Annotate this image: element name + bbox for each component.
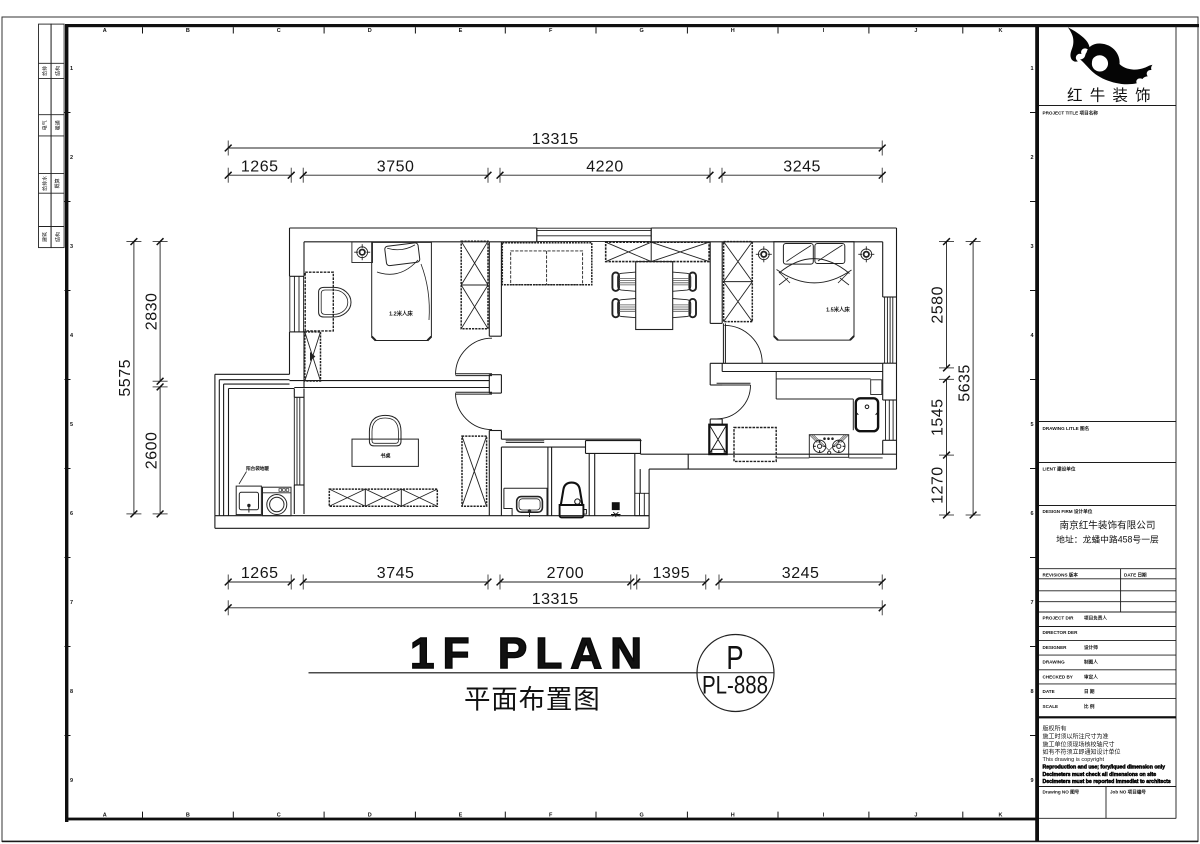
svg-text:2830: 2830: [143, 293, 160, 331]
svg-text:制图人: 制图人: [1084, 659, 1098, 666]
svg-text:2: 2: [1030, 155, 1033, 161]
svg-text:3245: 3245: [783, 158, 821, 175]
svg-text:9: 9: [1030, 778, 1033, 784]
svg-text:PL-888: PL-888: [702, 671, 768, 699]
svg-text:南京红牛装饰有限公司: 南京红牛装饰有限公司: [1060, 520, 1156, 532]
svg-text:G: G: [640, 812, 644, 818]
svg-text:DATE: DATE: [1043, 689, 1055, 694]
svg-text:给排: 给排: [41, 66, 48, 76]
svg-text:3750: 3750: [377, 158, 415, 175]
svg-text:K: K: [999, 812, 1003, 818]
svg-text:CHECKED BY: CHECKED BY: [1043, 675, 1073, 680]
svg-text:J: J: [914, 28, 917, 34]
svg-text:红牛装饰: 红牛装饰: [1067, 87, 1158, 105]
svg-text:暖通: 暖通: [54, 120, 61, 130]
svg-text:给排水: 给排水: [41, 176, 48, 191]
svg-text:8: 8: [70, 689, 73, 695]
svg-text:6: 6: [70, 511, 73, 517]
svg-text:1: 1: [70, 66, 73, 72]
svg-text:施工单位须现场核校轴尺寸: 施工单位须现场核校轴尺寸: [1043, 740, 1115, 748]
svg-text:E: E: [459, 28, 463, 34]
svg-text:SCALE: SCALE: [1043, 704, 1059, 709]
svg-text:E: E: [459, 812, 463, 818]
svg-text:5: 5: [1030, 422, 1033, 428]
svg-text:1.2米人床: 1.2米人床: [389, 310, 413, 318]
svg-text:C: C: [277, 28, 281, 34]
svg-text:1.5米人床: 1.5米人床: [826, 306, 850, 314]
svg-text:6: 6: [1030, 511, 1033, 517]
svg-text:1265: 1265: [241, 158, 279, 175]
svg-text:1395: 1395: [653, 565, 691, 582]
svg-text:1545: 1545: [930, 398, 947, 436]
svg-text:2: 2: [70, 155, 73, 161]
svg-text:8: 8: [1030, 689, 1033, 695]
svg-text:DESIGN FIRM 设计单位: DESIGN FIRM 设计单位: [1043, 508, 1093, 515]
svg-text:7: 7: [1030, 600, 1033, 606]
svg-text:如有不符须立即通知设计单位: 如有不符须立即通知设计单位: [1043, 748, 1121, 756]
svg-text:DRAWING LITLE 图名: DRAWING LITLE 图名: [1043, 425, 1090, 432]
svg-text:Reproduction and use; fory/iqu: Reproduction and use; fory/iqued dimensi…: [1043, 764, 1166, 770]
svg-text:G: G: [640, 28, 644, 34]
svg-text:7: 7: [70, 600, 73, 606]
svg-text:3245: 3245: [782, 565, 820, 582]
svg-text:3: 3: [70, 244, 73, 250]
svg-text:DESIGNER: DESIGNER: [1043, 645, 1068, 650]
svg-text:D: D: [368, 812, 372, 818]
svg-text:Decimeters must check all dime: Decimeters must check all dimensions on …: [1043, 772, 1157, 778]
svg-text:4220: 4220: [586, 158, 624, 175]
svg-text:书桌: 书桌: [380, 453, 391, 460]
svg-text:B: B: [186, 28, 190, 34]
svg-text:3745: 3745: [377, 565, 415, 582]
svg-text:C: C: [277, 812, 281, 818]
svg-text:5635: 5635: [956, 364, 973, 402]
svg-text:概算: 概算: [54, 178, 61, 188]
svg-text:DIRECTOR DER: DIRECTOR DER: [1043, 630, 1079, 635]
svg-text:结构: 结构: [54, 232, 61, 242]
svg-text:地址：龙蟠中路458号一层: 地址：龙蟠中路458号一层: [1056, 534, 1159, 545]
svg-text:审定人: 审定人: [1084, 674, 1098, 681]
svg-text:电气: 电气: [41, 120, 48, 130]
svg-text:5: 5: [70, 422, 73, 428]
svg-text:K: K: [999, 28, 1003, 34]
svg-text:比 例: 比 例: [1084, 703, 1095, 710]
svg-text:建筑: 建筑: [41, 232, 48, 242]
svg-text:2580: 2580: [930, 286, 947, 324]
svg-text:日 期: 日 期: [1084, 688, 1095, 695]
svg-text:9: 9: [70, 778, 73, 784]
svg-text:PROJECT TITLE 项目名称: PROJECT TITLE 项目名称: [1043, 110, 1099, 117]
svg-text:H: H: [731, 28, 735, 34]
svg-text:3: 3: [1030, 244, 1033, 250]
svg-text:1265: 1265: [241, 565, 279, 582]
svg-text:设计师: 设计师: [1084, 644, 1098, 651]
svg-text:PROJECT DIR: PROJECT DIR: [1043, 616, 1075, 621]
svg-text:Decimeters must be reported im: Decimeters must be reported immediat to …: [1043, 779, 1171, 785]
svg-text:2700: 2700: [547, 565, 585, 582]
svg-text:Job NO 项目编号: Job NO 项目编号: [1110, 789, 1146, 796]
svg-text:Drawing NO 图号: Drawing NO 图号: [1043, 789, 1080, 796]
svg-text:版权所有: 版权所有: [1043, 725, 1067, 733]
svg-text:A: A: [103, 28, 107, 34]
svg-text:D: D: [368, 28, 372, 34]
svg-text:项目负责人: 项目负责人: [1084, 615, 1107, 622]
svg-text:A: A: [103, 812, 107, 818]
svg-text:平面布置图: 平面布置图: [464, 685, 601, 715]
svg-text:结构: 结构: [54, 66, 61, 76]
svg-text:LIENT 建设单位: LIENT 建设单位: [1043, 466, 1076, 473]
svg-text:2600: 2600: [143, 432, 160, 470]
svg-text:13315: 13315: [532, 591, 579, 608]
svg-text:H: H: [731, 812, 735, 818]
svg-text:1: 1: [1030, 66, 1033, 72]
svg-text:1270: 1270: [930, 466, 947, 504]
svg-text:REVISIONS 版本: REVISIONS 版本: [1043, 571, 1079, 578]
svg-text:13315: 13315: [532, 131, 579, 148]
svg-text:This drawing is copyright: This drawing is copyright: [1043, 757, 1105, 763]
svg-text:DRAWING: DRAWING: [1043, 660, 1066, 665]
svg-text:阳台袋地暖: 阳台袋地暖: [246, 465, 269, 472]
svg-text:J: J: [914, 812, 917, 818]
svg-text:DATE 日期: DATE 日期: [1124, 571, 1147, 578]
svg-text:施工时须以所注尺寸为准: 施工时须以所注尺寸为准: [1043, 733, 1109, 741]
svg-text:B: B: [186, 812, 190, 818]
svg-text:5575: 5575: [117, 359, 134, 397]
